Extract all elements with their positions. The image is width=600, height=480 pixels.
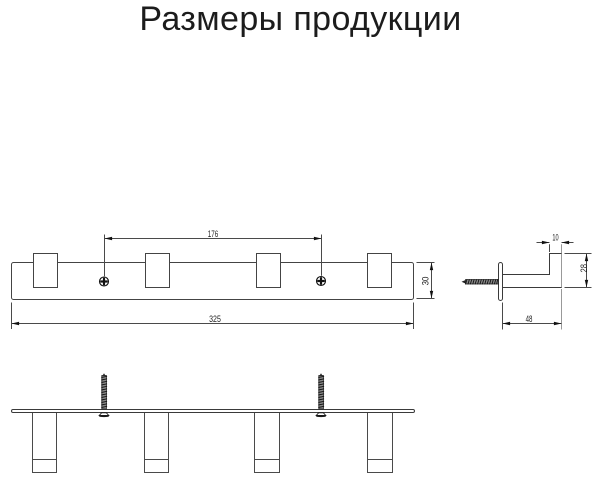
svg-text:48: 48 [526,314,533,325]
svg-text:Размеры продукции: Размеры продукции [139,0,461,38]
svg-text:176: 176 [208,229,219,240]
svg-text:10: 10 [552,233,558,243]
svg-text:325: 325 [209,314,221,325]
svg-text:28: 28 [579,264,589,273]
svg-text:30: 30 [421,277,431,286]
